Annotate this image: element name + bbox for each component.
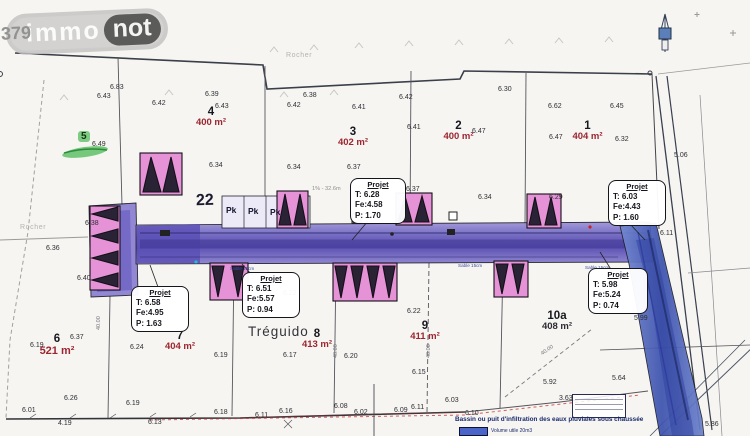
projet-callout-center: Projet T: 6.28 Fe:4.58 P: 1.70 <box>350 178 406 224</box>
projet-title: Projet <box>593 269 643 280</box>
elevation-label: 6.37 <box>406 186 420 193</box>
rocher-label-left: Rocher <box>20 224 46 231</box>
projet-t: T: 6.58 <box>136 298 160 307</box>
elevation-label: 6.36 <box>46 245 60 252</box>
legend-volume: Volume utile 20m3 <box>491 428 532 434</box>
elevation-label: 6.83 <box>110 84 124 91</box>
elevation-label: 6.15 <box>412 369 426 376</box>
elevation-label: 6.40 <box>77 275 91 282</box>
elevation-label: 6.11 <box>255 412 268 419</box>
immonot-logo: 379 immo not <box>5 7 168 55</box>
elevation-label: 6.42 <box>287 102 301 109</box>
cadastral-plan: 379 immo not Rocher Rocher Tréguido 4 40… <box>0 0 750 436</box>
dimension-label: 40.00 <box>426 344 432 358</box>
elevation-label: 6.11 <box>411 404 424 411</box>
logo-not-text: not <box>103 13 161 46</box>
elevation-label: 6.19 <box>214 352 228 359</box>
elevation-label: 6.45 <box>610 103 624 110</box>
elevation-label: 6.43 <box>215 103 229 110</box>
projet-fe: Fe:4.43 <box>613 202 641 211</box>
lot-5-badge: 5 <box>78 131 90 142</box>
elevation-label: 5.86 <box>705 421 719 428</box>
grade-note: 1% - 32.6m <box>312 186 341 192</box>
elevation-label: 6.20 <box>344 353 358 360</box>
projet-p: P: 1.70 <box>355 211 381 220</box>
elevation-label: 6.34 <box>209 162 223 169</box>
projet-callout-midbottom: Projet T: 6.51 Fe:5.57 P: 0.94 <box>242 272 300 318</box>
elevation-label: 5.64 <box>612 375 626 382</box>
lot-1: 1 404 m² <box>560 120 615 143</box>
projet-t: T: 6.28 <box>355 190 379 199</box>
projet-fe: Fe:5.57 <box>247 294 275 303</box>
elevation-label: 6.37 <box>347 164 361 171</box>
logo-prefix: 379 <box>1 22 32 44</box>
elevation-label: 6.16 <box>279 408 293 415</box>
elevation-label: 6.49 <box>92 141 106 148</box>
north-symbol-icon <box>659 14 671 52</box>
elevation-label: 6.26 <box>64 395 78 402</box>
elevation-label: 6.08 <box>334 403 348 410</box>
projet-t: T: 6.03 <box>613 192 637 201</box>
projet-title: Projet <box>613 181 661 192</box>
elevation-label: 6.17 <box>283 352 297 359</box>
elevation-label: 6.41 <box>407 124 421 131</box>
elevation-label: 6.19 <box>30 342 44 349</box>
elevation-label: 6.22 <box>407 308 421 315</box>
elevation-label: 6.11 <box>660 230 673 237</box>
elevation-label: 6.34 <box>478 194 492 201</box>
elevation-label: 6.01 <box>22 407 36 414</box>
projet-p: P: 0.94 <box>247 305 273 314</box>
projet-fe: Fe:5.24 <box>593 290 621 299</box>
lot-7-area: 404 m² <box>155 342 205 353</box>
dimension-label: 40.00 <box>96 316 102 330</box>
lot-3: 3 402 m² <box>328 126 378 149</box>
elevation-label: 6.03 <box>445 397 459 404</box>
elevation-label: 6.62 <box>548 103 562 110</box>
lot-9: 9 411 m² <box>400 320 450 343</box>
projet-t: T: 6.51 <box>247 284 271 293</box>
projet-p: P: 0.74 <box>593 301 619 310</box>
elevation-label: 6.24 <box>130 344 144 351</box>
sable-label: Sable 15cm <box>458 263 482 268</box>
projet-title: Projet <box>247 273 295 284</box>
elevation-label: 5.99 <box>634 315 648 322</box>
projet-title: Projet <box>136 287 184 298</box>
lot-9-area: 411 m² <box>400 332 450 343</box>
elevation-label: 5.92 <box>543 379 557 386</box>
elevation-label: 6.47 <box>549 134 563 141</box>
lot-4-area: 400 m² <box>186 118 236 129</box>
legend-title: Bassin ou puit d'infiltration des eaux p… <box>455 416 643 423</box>
elevation-label: 4.19 <box>58 420 72 427</box>
elevation-label: 6.18 <box>214 409 228 416</box>
parking-pk-label: Pk <box>248 206 258 216</box>
parking-count-label: 22 <box>196 192 214 211</box>
elevation-label: 6.47 <box>472 128 486 135</box>
projet-t: T: 5.98 <box>593 280 617 289</box>
parking-pk-label: Pk <box>226 205 236 215</box>
elevation-label: 6.02 <box>354 409 368 416</box>
lot-8: 8 413 m² <box>292 328 342 351</box>
parking-pk-label: Pk <box>270 207 280 217</box>
elevation-label: 6.32 <box>615 136 629 143</box>
legend-mini-table <box>572 394 626 418</box>
lot-10a: 10a 408 m² <box>528 310 586 333</box>
lot-8-area: 413 m² <box>292 340 342 351</box>
projet-p: P: 1.60 <box>613 213 639 222</box>
lot-10a-area: 408 m² <box>528 322 586 333</box>
projet-callout-left: Projet T: 6.58 Fe:4.95 P: 1.63 <box>131 286 189 332</box>
logo-immo-text: immo <box>26 18 102 46</box>
elevation-label: 3.63 <box>559 395 573 402</box>
projet-fe: Fe:4.95 <box>136 308 164 317</box>
elevation-label: 6.13 <box>148 419 162 426</box>
elevation-label: 6.41 <box>352 104 366 111</box>
projet-callout-bottomright: Projet T: 5.98 Fe:5.24 P: 0.74 <box>588 268 648 314</box>
elevation-label: 6.19 <box>126 400 140 407</box>
elevation-label: 6.38 <box>303 92 317 99</box>
projet-p: P: 1.63 <box>136 319 162 328</box>
elevation-label: 6.34 <box>287 164 301 171</box>
elevation-label: 6.39 <box>205 91 219 98</box>
elevation-label: 6.37 <box>70 334 84 341</box>
elevation-label: 6.29 <box>549 194 563 201</box>
elevation-label: 6.30 <box>498 86 512 93</box>
projet-fe: Fe:4.58 <box>355 200 383 209</box>
elevation-label: 6.42 <box>152 100 166 107</box>
elevation-label: 6.09 <box>394 407 408 414</box>
elevation-label: 6.42 <box>399 94 413 101</box>
lot-1-area: 404 m² <box>560 132 615 143</box>
lot-3-area: 402 m² <box>328 138 378 149</box>
projet-title: Projet <box>355 179 401 190</box>
elevation-label: 6.43 <box>97 93 111 100</box>
projet-callout-topright: Projet T: 6.03 Fe:4.43 P: 1.60 <box>608 180 666 226</box>
legend-swatch <box>459 427 488 436</box>
lot-7: 7 404 m² <box>155 330 205 353</box>
elevation-label: 5.06 <box>674 152 688 159</box>
elevation-label: 6.38 <box>85 220 99 227</box>
rocher-label-top: Rocher <box>286 52 312 59</box>
sable-label: Sable 15cm <box>230 266 254 271</box>
